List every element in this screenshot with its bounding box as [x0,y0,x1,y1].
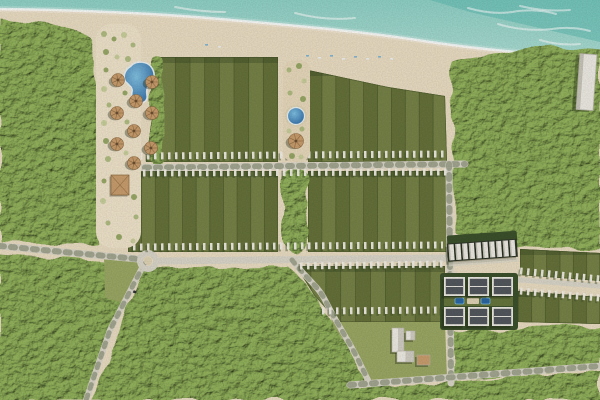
photo-grain [0,0,600,400]
masterplan-rendering [0,0,600,400]
masterplan-canvas [0,0,600,400]
